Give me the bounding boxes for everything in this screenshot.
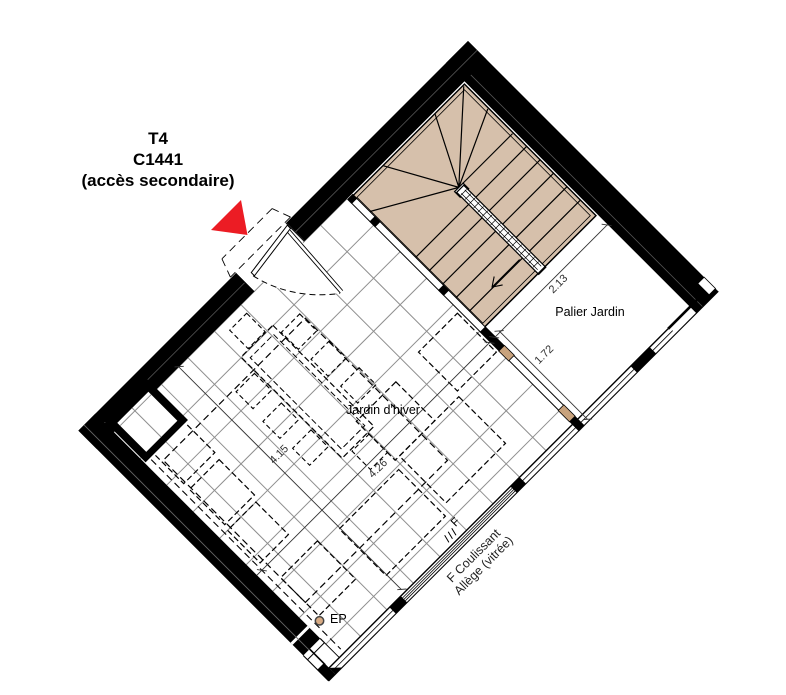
svg-text:(accès secondaire): (accès secondaire) (81, 171, 234, 190)
svg-text:Palier Jardin: Palier Jardin (555, 305, 625, 319)
svg-text:Jardin d'hiver: Jardin d'hiver (346, 403, 420, 417)
svg-text:EP: EP (330, 612, 347, 626)
svg-text:C1441: C1441 (133, 150, 183, 169)
svg-text:T4: T4 (148, 129, 168, 148)
